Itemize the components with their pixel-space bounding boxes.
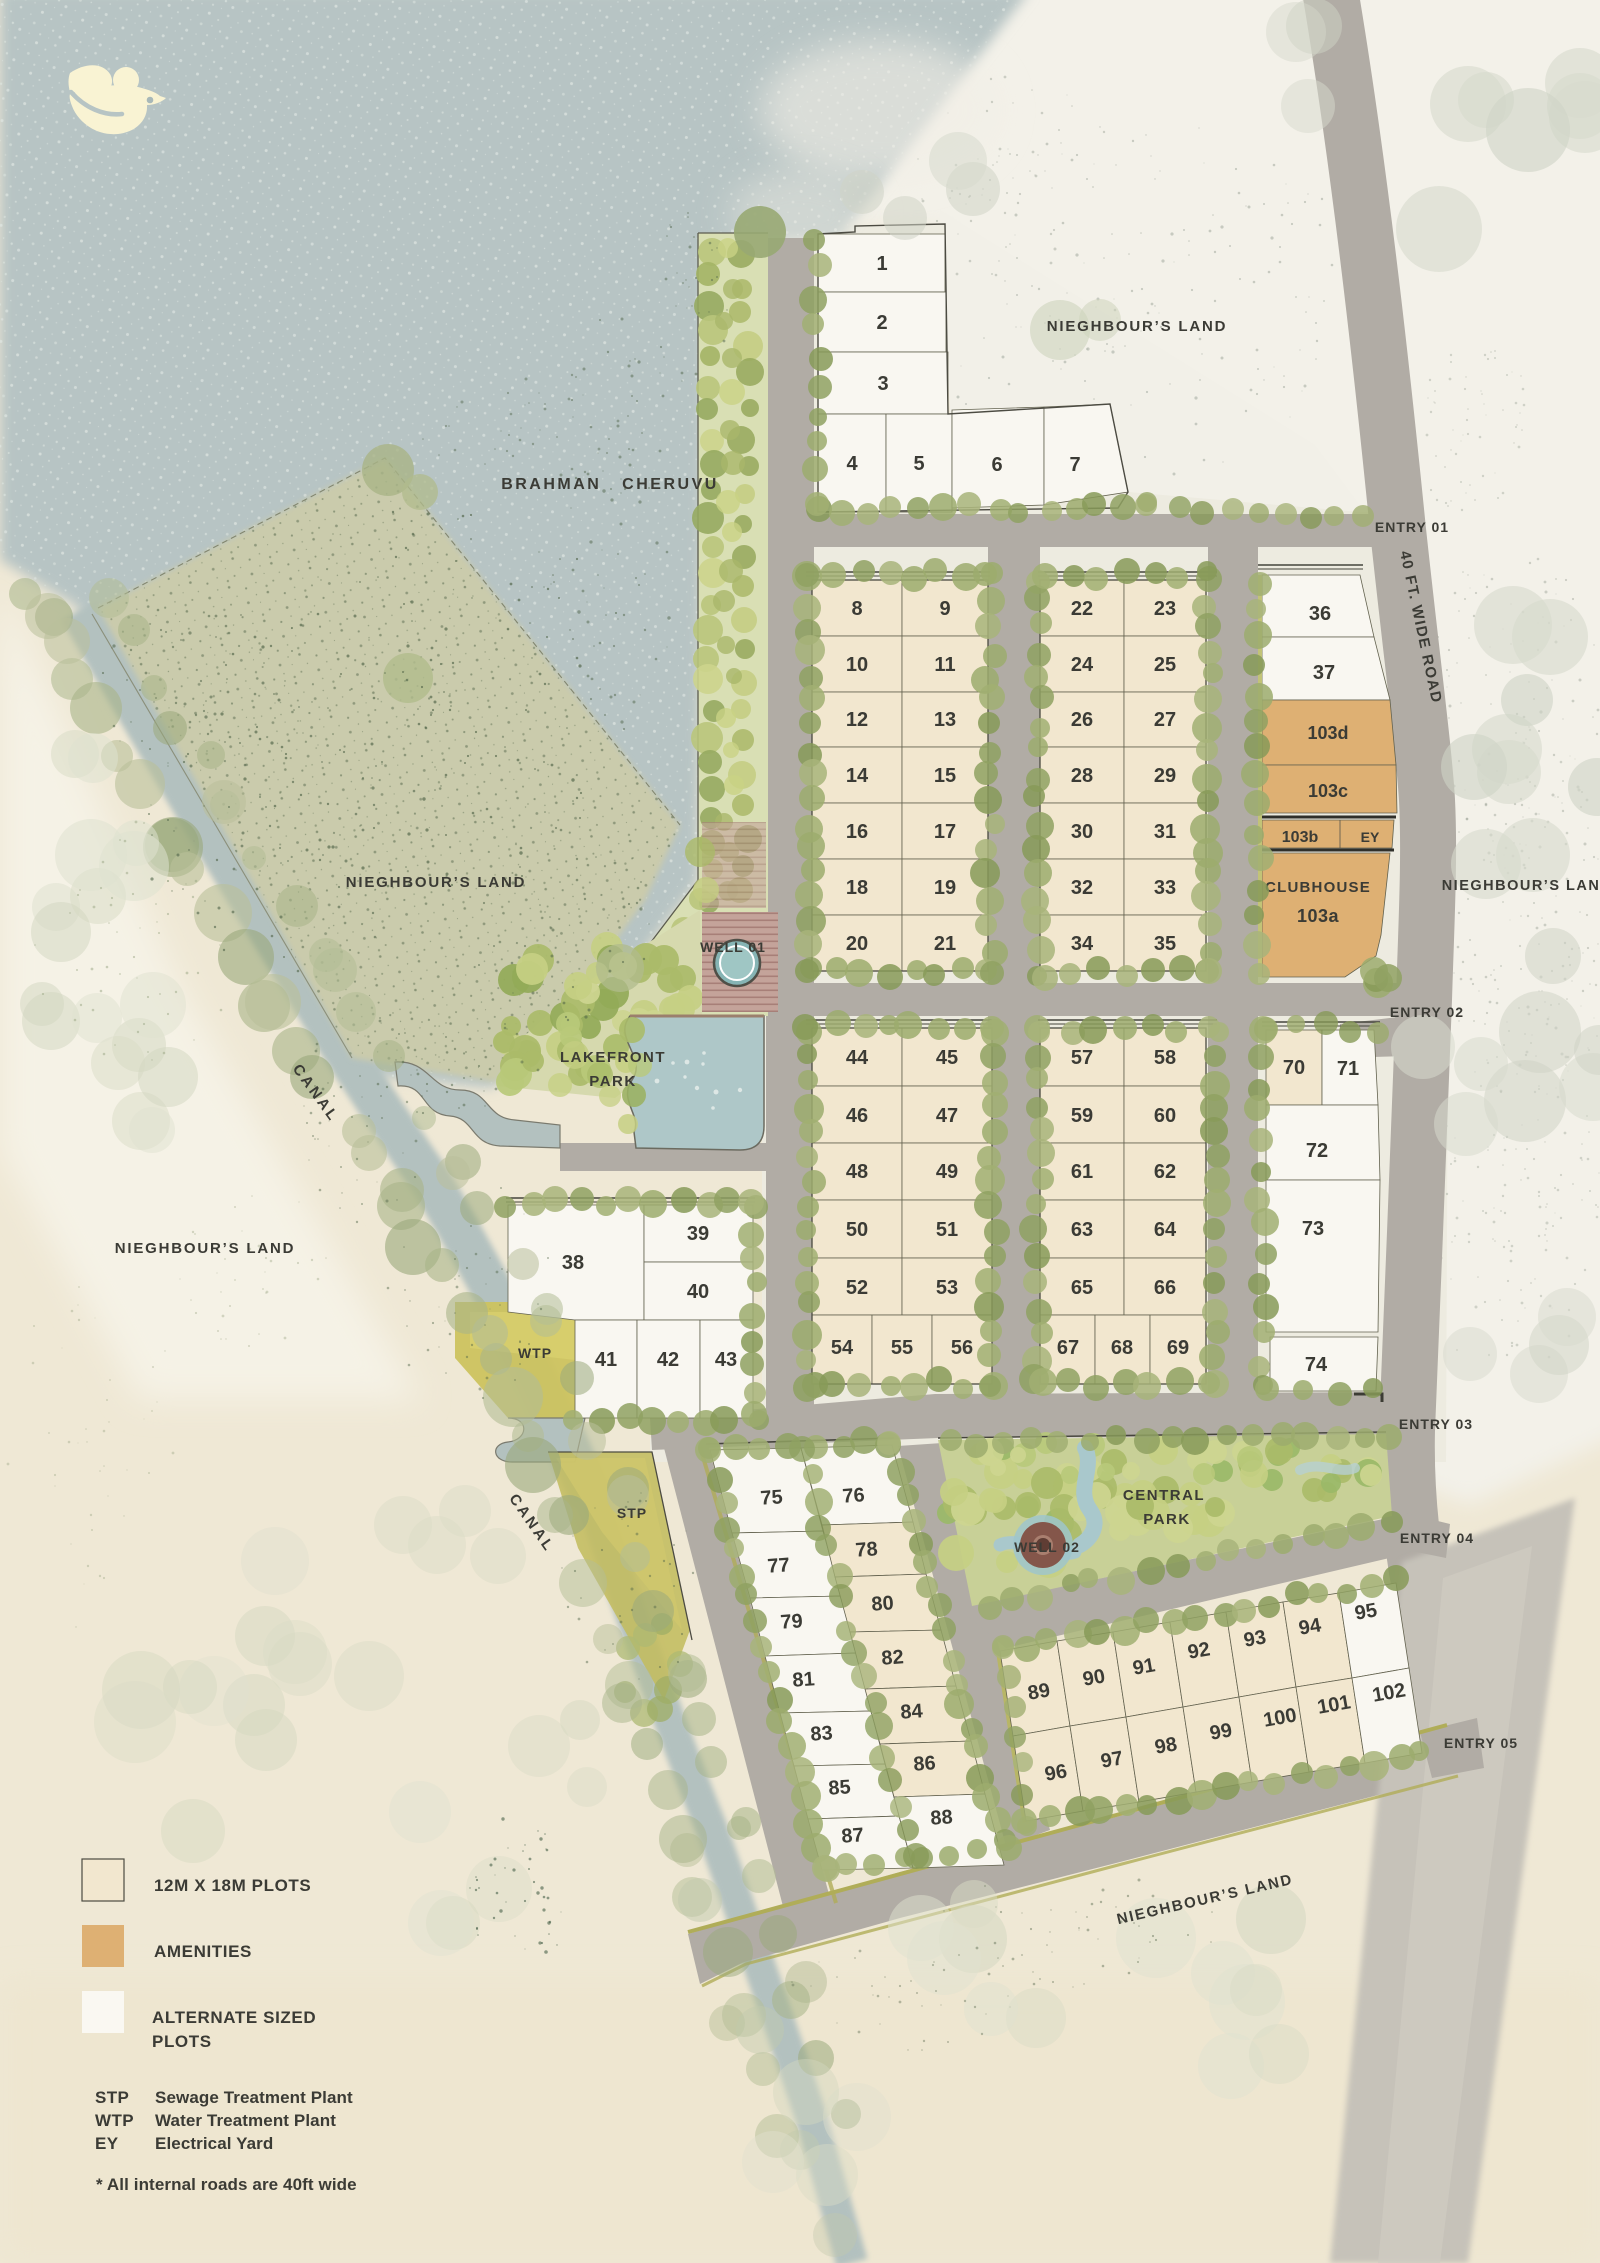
svg-text:45: 45 xyxy=(936,1047,958,1069)
svg-text:ENTRY 05: ENTRY 05 xyxy=(1444,1735,1518,1751)
svg-text:79: 79 xyxy=(780,1610,804,1633)
svg-text:66: 66 xyxy=(1154,1277,1176,1299)
svg-text:ENTRY 04: ENTRY 04 xyxy=(1400,1530,1474,1546)
svg-text:92: 92 xyxy=(1186,1638,1212,1664)
svg-text:42: 42 xyxy=(657,1349,679,1371)
svg-text:CENTRAL: CENTRAL xyxy=(1123,1487,1205,1504)
svg-text:49: 49 xyxy=(936,1161,958,1183)
svg-text:CLUBHOUSE: CLUBHOUSE xyxy=(1265,879,1371,896)
svg-text:70: 70 xyxy=(1283,1057,1305,1079)
svg-text:84: 84 xyxy=(900,1700,925,1724)
svg-text:9: 9 xyxy=(939,598,950,620)
svg-text:72: 72 xyxy=(1306,1140,1328,1162)
svg-text:59: 59 xyxy=(1071,1105,1093,1127)
svg-text:1: 1 xyxy=(876,253,887,275)
svg-text:97: 97 xyxy=(1099,1747,1125,1773)
svg-text:ENTRY 01: ENTRY 01 xyxy=(1375,519,1449,535)
svg-text:16: 16 xyxy=(846,821,868,843)
svg-text:56: 56 xyxy=(951,1337,973,1359)
svg-text:NIEGHBOUR’S LAND: NIEGHBOUR’S LAND xyxy=(1047,318,1227,335)
svg-text:99: 99 xyxy=(1208,1719,1234,1745)
svg-text:37: 37 xyxy=(1313,662,1335,684)
svg-text:4: 4 xyxy=(846,453,858,475)
svg-text:33: 33 xyxy=(1154,877,1176,899)
svg-text:13: 13 xyxy=(934,709,956,731)
svg-text:55: 55 xyxy=(891,1337,913,1359)
svg-text:76: 76 xyxy=(842,1484,866,1507)
svg-text:ENTRY 02: ENTRY 02 xyxy=(1390,1004,1464,1020)
svg-text:39: 39 xyxy=(687,1223,709,1245)
svg-text:61: 61 xyxy=(1071,1161,1093,1183)
svg-text:15: 15 xyxy=(934,765,956,787)
svg-text:60: 60 xyxy=(1154,1105,1176,1127)
svg-text:2: 2 xyxy=(876,312,887,334)
svg-text:* All internal roads are 40ft: * All internal roads are 40ft wide xyxy=(96,2175,357,2194)
svg-text:STP: STP xyxy=(617,1505,647,1521)
svg-text:96: 96 xyxy=(1043,1760,1069,1786)
svg-text:30: 30 xyxy=(1071,821,1093,843)
svg-text:74: 74 xyxy=(1305,1354,1328,1376)
svg-text:21: 21 xyxy=(934,933,956,955)
svg-text:NIEGHBOUR’S LAND: NIEGHBOUR’S LAND xyxy=(1442,878,1600,894)
svg-text:14: 14 xyxy=(846,765,869,787)
svg-text:85: 85 xyxy=(828,1776,852,1799)
svg-text:6: 6 xyxy=(991,454,1002,476)
svg-text:53: 53 xyxy=(936,1277,958,1299)
svg-text:44: 44 xyxy=(846,1047,869,1069)
svg-text:NIEGHBOUR’S LAND: NIEGHBOUR’S LAND xyxy=(346,874,526,891)
svg-text:51: 51 xyxy=(936,1219,958,1241)
svg-text:68: 68 xyxy=(1111,1337,1133,1359)
svg-text:46: 46 xyxy=(846,1105,868,1127)
svg-text:41: 41 xyxy=(595,1349,617,1371)
svg-text:NIEGHBOUR’S LAND: NIEGHBOUR’S LAND xyxy=(115,1240,295,1257)
svg-text:77: 77 xyxy=(767,1554,791,1577)
svg-text:62: 62 xyxy=(1154,1161,1176,1183)
svg-text:103d: 103d xyxy=(1307,723,1348,743)
svg-text:26: 26 xyxy=(1071,709,1093,731)
svg-text:82: 82 xyxy=(881,1646,905,1669)
svg-text:Water Treatment Plant: Water Treatment Plant xyxy=(155,2111,336,2130)
svg-text:87: 87 xyxy=(841,1824,865,1847)
svg-text:103b: 103b xyxy=(1282,829,1319,846)
svg-text:50: 50 xyxy=(846,1219,868,1241)
svg-text:19: 19 xyxy=(934,877,956,899)
svg-text:88: 88 xyxy=(930,1806,954,1829)
svg-text:65: 65 xyxy=(1071,1277,1093,1299)
svg-text:73: 73 xyxy=(1302,1218,1324,1240)
svg-text:86: 86 xyxy=(913,1752,937,1775)
svg-text:29: 29 xyxy=(1154,765,1176,787)
svg-text:23: 23 xyxy=(1154,598,1176,620)
svg-text:34: 34 xyxy=(1071,933,1094,955)
svg-text:5: 5 xyxy=(913,453,924,475)
svg-text:8: 8 xyxy=(851,598,862,620)
svg-text:LAKEFRONT: LAKEFRONT xyxy=(560,1049,666,1066)
svg-text:20: 20 xyxy=(846,933,868,955)
svg-text:36: 36 xyxy=(1309,603,1331,625)
svg-text:AMENITIES: AMENITIES xyxy=(154,1942,252,1961)
svg-text:17: 17 xyxy=(934,821,956,843)
svg-text:Electrical Yard: Electrical Yard xyxy=(155,2134,273,2153)
svg-text:WTP: WTP xyxy=(518,1345,552,1361)
svg-text:98: 98 xyxy=(1153,1733,1179,1759)
svg-text:81: 81 xyxy=(792,1668,816,1691)
svg-text:57: 57 xyxy=(1071,1047,1093,1069)
svg-text:STP: STP xyxy=(95,2088,129,2107)
svg-text:43: 43 xyxy=(715,1349,737,1371)
svg-text:PLOTS: PLOTS xyxy=(152,2032,212,2051)
svg-text:103c: 103c xyxy=(1308,781,1348,801)
svg-text:32: 32 xyxy=(1071,877,1093,899)
svg-text:64: 64 xyxy=(1154,1219,1177,1241)
svg-text:BRAHMAN CHERUVU: BRAHMAN CHERUVU xyxy=(501,476,719,493)
svg-text:69: 69 xyxy=(1167,1337,1189,1359)
svg-text:47: 47 xyxy=(936,1105,958,1127)
svg-text:89: 89 xyxy=(1026,1679,1052,1705)
svg-text:18: 18 xyxy=(846,877,868,899)
svg-text:78: 78 xyxy=(855,1538,879,1561)
svg-text:Sewage Treatment Plant: Sewage Treatment Plant xyxy=(155,2088,353,2107)
svg-text:35: 35 xyxy=(1154,933,1176,955)
svg-text:103a: 103a xyxy=(1297,906,1340,926)
svg-text:83: 83 xyxy=(810,1722,834,1745)
svg-text:3: 3 xyxy=(877,373,888,395)
svg-text:67: 67 xyxy=(1057,1337,1079,1359)
svg-text:12M X 18M PLOTS: 12M X 18M PLOTS xyxy=(154,1876,311,1895)
svg-text:EY: EY xyxy=(1361,829,1380,845)
svg-text:ENTRY 03: ENTRY 03 xyxy=(1399,1416,1473,1432)
svg-text:24: 24 xyxy=(1071,654,1094,676)
svg-text:58: 58 xyxy=(1154,1047,1176,1069)
svg-text:71: 71 xyxy=(1337,1058,1359,1080)
svg-text:WTP: WTP xyxy=(95,2111,134,2130)
svg-text:12: 12 xyxy=(846,709,868,731)
svg-text:31: 31 xyxy=(1154,821,1176,843)
svg-text:28: 28 xyxy=(1071,765,1093,787)
svg-text:7: 7 xyxy=(1069,454,1080,476)
svg-text:75: 75 xyxy=(760,1486,784,1509)
svg-text:11: 11 xyxy=(934,654,955,676)
svg-text:WELL 02: WELL 02 xyxy=(1014,1539,1080,1555)
svg-text:PARK: PARK xyxy=(1143,1511,1190,1528)
svg-text:52: 52 xyxy=(846,1277,868,1299)
svg-text:38: 38 xyxy=(562,1252,584,1274)
svg-text:EY: EY xyxy=(95,2134,119,2153)
svg-text:40: 40 xyxy=(687,1281,709,1303)
svg-text:48: 48 xyxy=(846,1161,868,1183)
svg-text:WELL 01: WELL 01 xyxy=(700,939,766,955)
svg-text:ALTERNATE SIZED: ALTERNATE SIZED xyxy=(152,2008,316,2027)
svg-text:PARK: PARK xyxy=(589,1073,636,1090)
svg-text:91: 91 xyxy=(1131,1654,1157,1680)
svg-text:25: 25 xyxy=(1154,654,1176,676)
svg-text:95: 95 xyxy=(1353,1599,1379,1625)
svg-text:63: 63 xyxy=(1071,1219,1093,1241)
svg-text:27: 27 xyxy=(1154,709,1176,731)
svg-text:22: 22 xyxy=(1071,598,1093,620)
svg-text:93: 93 xyxy=(1242,1626,1268,1652)
svg-text:54: 54 xyxy=(831,1337,854,1359)
svg-text:10: 10 xyxy=(846,654,868,676)
svg-text:90: 90 xyxy=(1081,1665,1107,1691)
svg-text:80: 80 xyxy=(871,1592,895,1615)
